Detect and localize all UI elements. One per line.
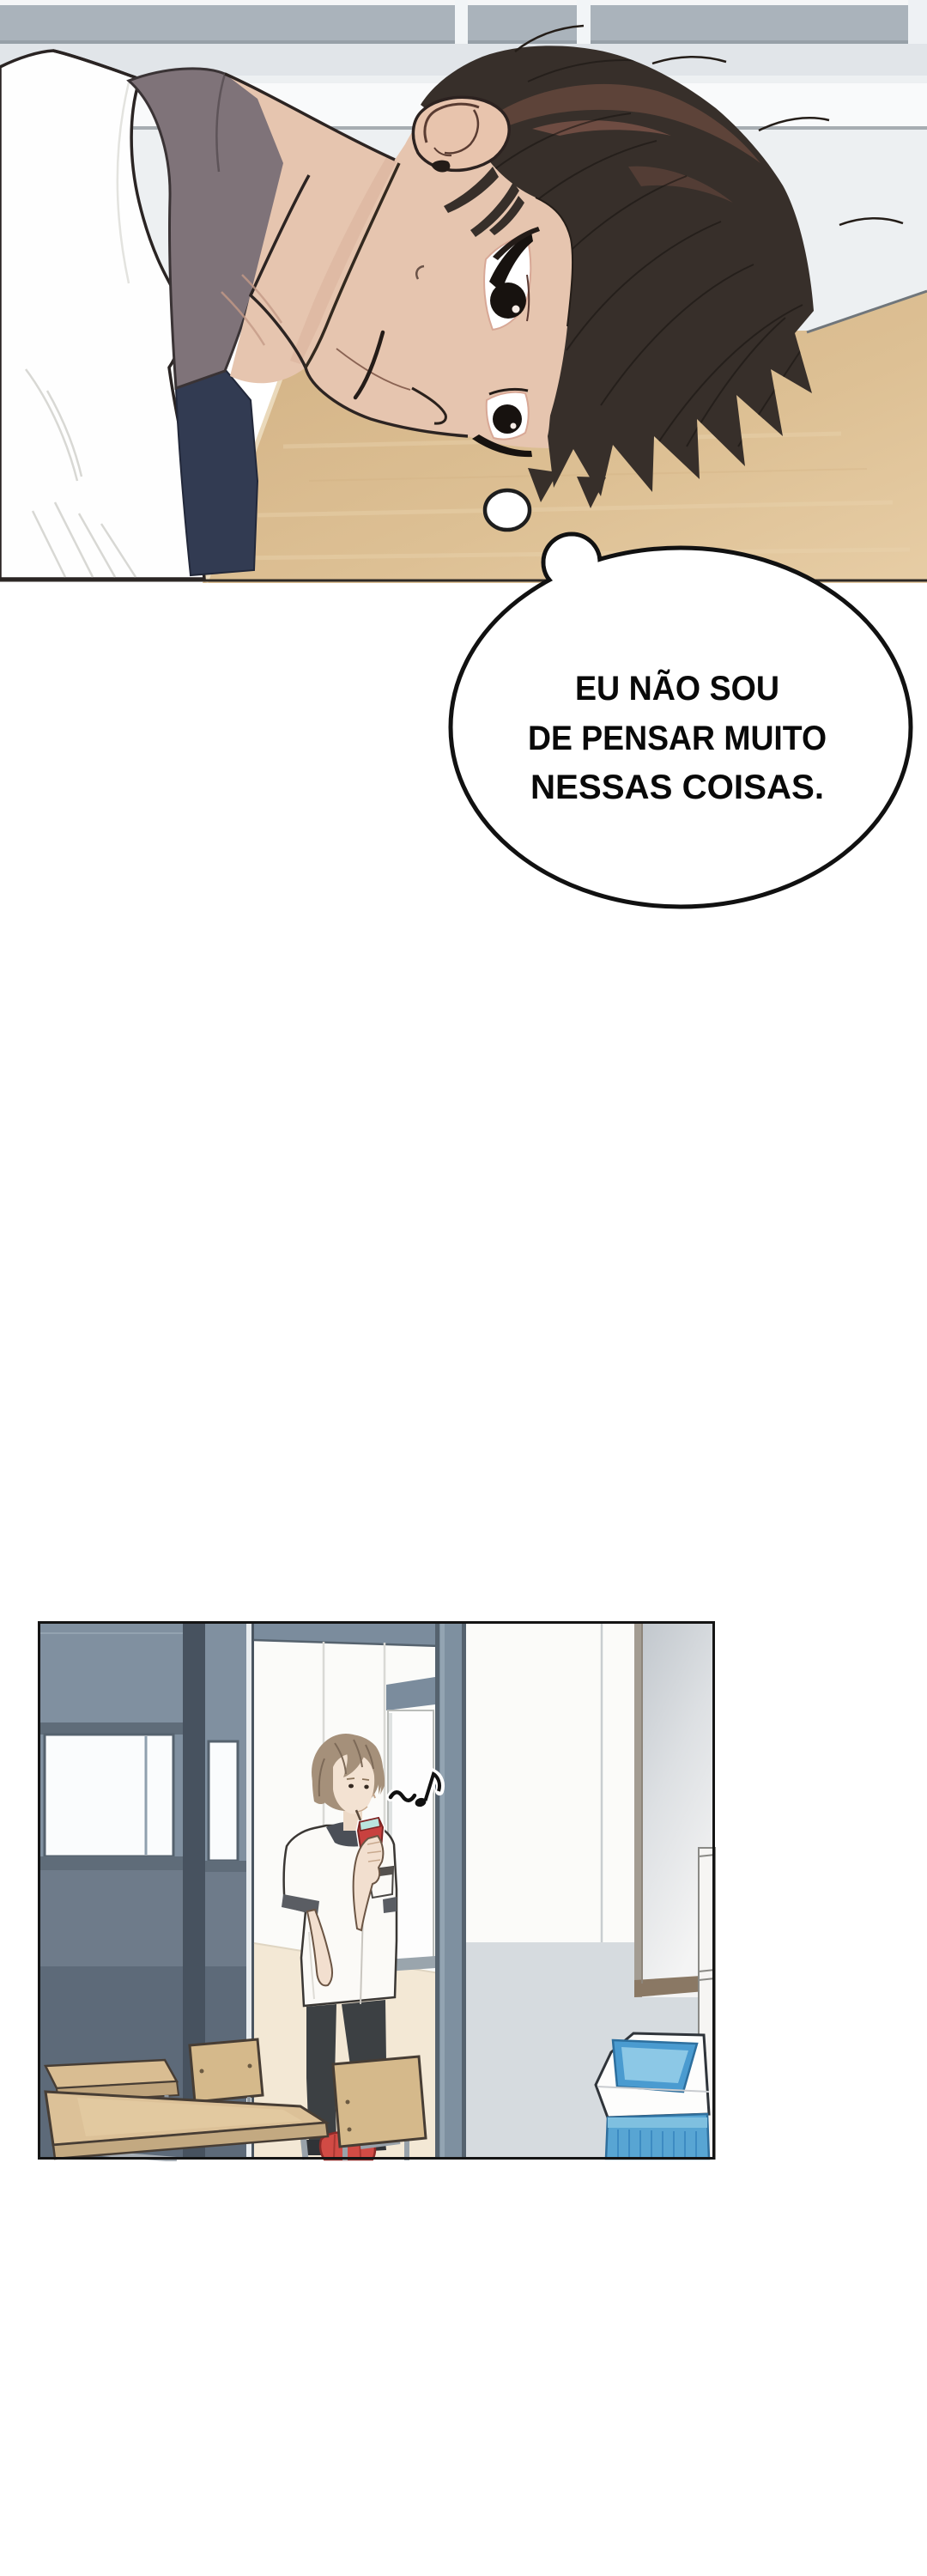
svg-text:DE PENSAR MUITO: DE PENSAR MUITO [528, 720, 827, 757]
svg-text:EU NÃO SOU: EU NÃO SOU [575, 668, 779, 708]
svg-text:NESSAS COISAS.: NESSAS COISAS. [530, 769, 824, 806]
